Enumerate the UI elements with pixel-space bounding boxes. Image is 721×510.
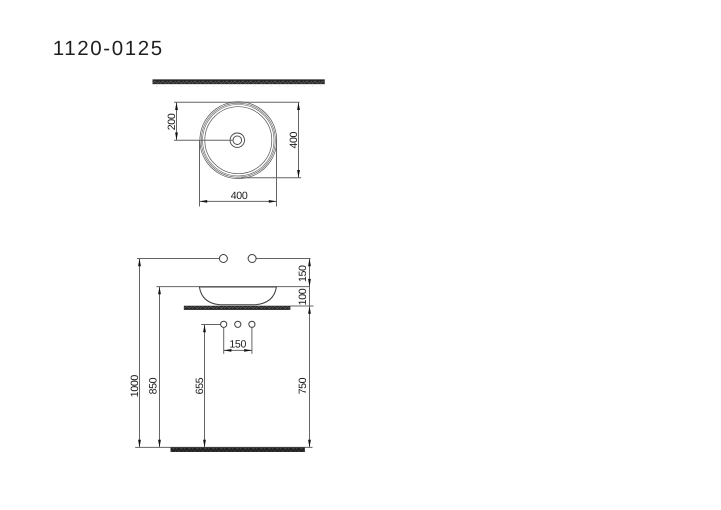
- svg-text:150: 150: [229, 339, 246, 351]
- svg-text:655: 655: [194, 377, 206, 394]
- svg-text:1000: 1000: [129, 375, 141, 398]
- svg-text:850: 850: [147, 377, 159, 394]
- svg-text:100: 100: [297, 288, 309, 305]
- svg-text:400: 400: [231, 190, 248, 202]
- svg-text:150: 150: [297, 265, 309, 282]
- svg-text:1120-0125: 1120-0125: [53, 37, 164, 60]
- svg-text:750: 750: [297, 377, 309, 394]
- svg-text:400: 400: [288, 131, 300, 148]
- svg-text:200: 200: [166, 113, 178, 130]
